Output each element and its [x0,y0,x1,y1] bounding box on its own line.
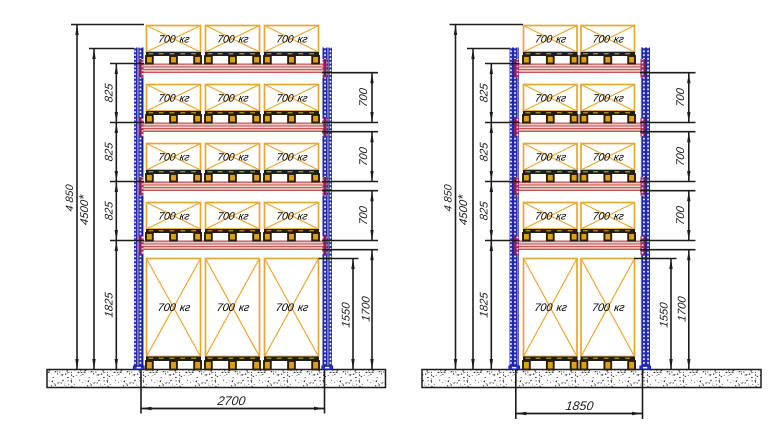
svg-text:825: 825 [103,82,115,103]
svg-text:700 кг: 700 кг [534,33,566,45]
svg-text:825: 825 [478,200,490,221]
svg-text:825: 825 [478,141,490,162]
svg-text:1850: 1850 [565,399,595,413]
svg-text:700 кг: 700 кг [276,210,308,222]
svg-text:4500*: 4500* [76,193,91,226]
svg-text:1825: 1825 [103,291,115,318]
svg-text:700: 700 [675,87,687,108]
svg-text:1825: 1825 [478,291,490,318]
svg-text:1700: 1700 [360,295,372,322]
svg-text:700 кг: 700 кг [276,151,308,163]
svg-text:700 кг: 700 кг [157,302,192,314]
svg-text:700 кг: 700 кг [534,210,566,222]
svg-text:700 кг: 700 кг [217,210,249,222]
svg-text:700 кг: 700 кг [276,92,308,104]
svg-text:700 кг: 700 кг [592,210,624,222]
svg-text:700 кг: 700 кг [591,302,626,314]
svg-text:4 850: 4 850 [64,184,76,212]
svg-text:700 кг: 700 кг [217,92,249,104]
svg-text:700 кг: 700 кг [158,210,190,222]
svg-text:700 кг: 700 кг [534,92,566,104]
svg-text:700: 700 [358,87,370,108]
svg-text:4 850: 4 850 [442,184,454,212]
svg-text:4500*: 4500* [455,193,470,226]
svg-text:2700: 2700 [216,394,247,408]
svg-text:700: 700 [675,205,687,226]
svg-text:700 кг: 700 кг [158,151,190,163]
svg-text:825: 825 [103,141,115,162]
svg-text:700 кг: 700 кг [592,33,624,45]
svg-text:1550: 1550 [658,301,670,328]
svg-text:700 кг: 700 кг [534,151,566,163]
svg-text:700 кг: 700 кг [217,33,249,45]
svg-text:700 кг: 700 кг [275,302,310,314]
svg-text:700: 700 [358,205,370,226]
svg-text:700: 700 [675,146,687,167]
svg-text:700: 700 [358,146,370,167]
svg-text:1550: 1550 [340,301,352,328]
svg-text:1700: 1700 [676,295,688,322]
svg-text:700 кг: 700 кг [592,151,624,163]
svg-text:825: 825 [478,82,490,103]
svg-text:700 кг: 700 кг [276,33,308,45]
svg-text:700 кг: 700 кг [216,302,251,314]
svg-text:700 кг: 700 кг [592,92,624,104]
svg-text:700 кг: 700 кг [217,151,249,163]
svg-text:825: 825 [103,200,115,221]
svg-text:700 кг: 700 кг [534,302,569,314]
svg-text:700 кг: 700 кг [158,33,190,45]
svg-text:700 кг: 700 кг [158,92,190,104]
